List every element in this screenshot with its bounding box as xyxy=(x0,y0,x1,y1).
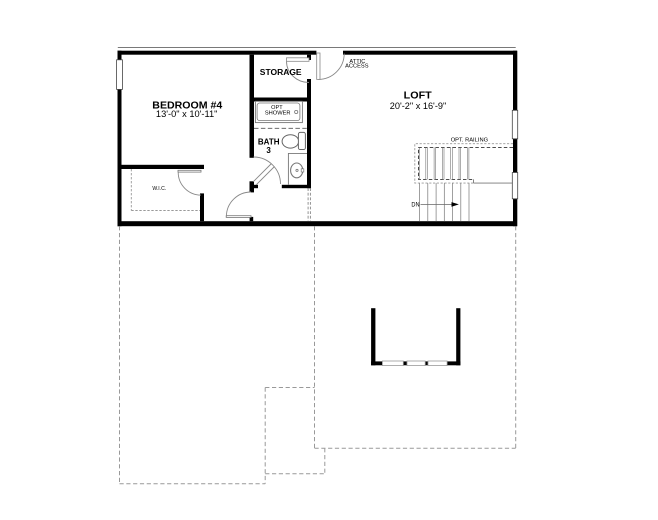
svg-text:LOFT: LOFT xyxy=(404,90,432,101)
svg-text:3: 3 xyxy=(266,146,271,155)
svg-text:SHOWER: SHOWER xyxy=(265,111,291,117)
svg-text:20'-2" x 16'-9": 20'-2" x 16'-9" xyxy=(390,101,447,111)
svg-text:W.I.C.: W.I.C. xyxy=(152,186,166,192)
svg-text:DN: DN xyxy=(411,202,419,209)
svg-text:OPT. RAILING: OPT. RAILING xyxy=(451,137,489,143)
svg-text:STORAGE: STORAGE xyxy=(260,67,302,77)
svg-text:ACCESS: ACCESS xyxy=(345,64,369,70)
svg-text:13'-0" x 10'-11": 13'-0" x 10'-11" xyxy=(156,109,218,119)
